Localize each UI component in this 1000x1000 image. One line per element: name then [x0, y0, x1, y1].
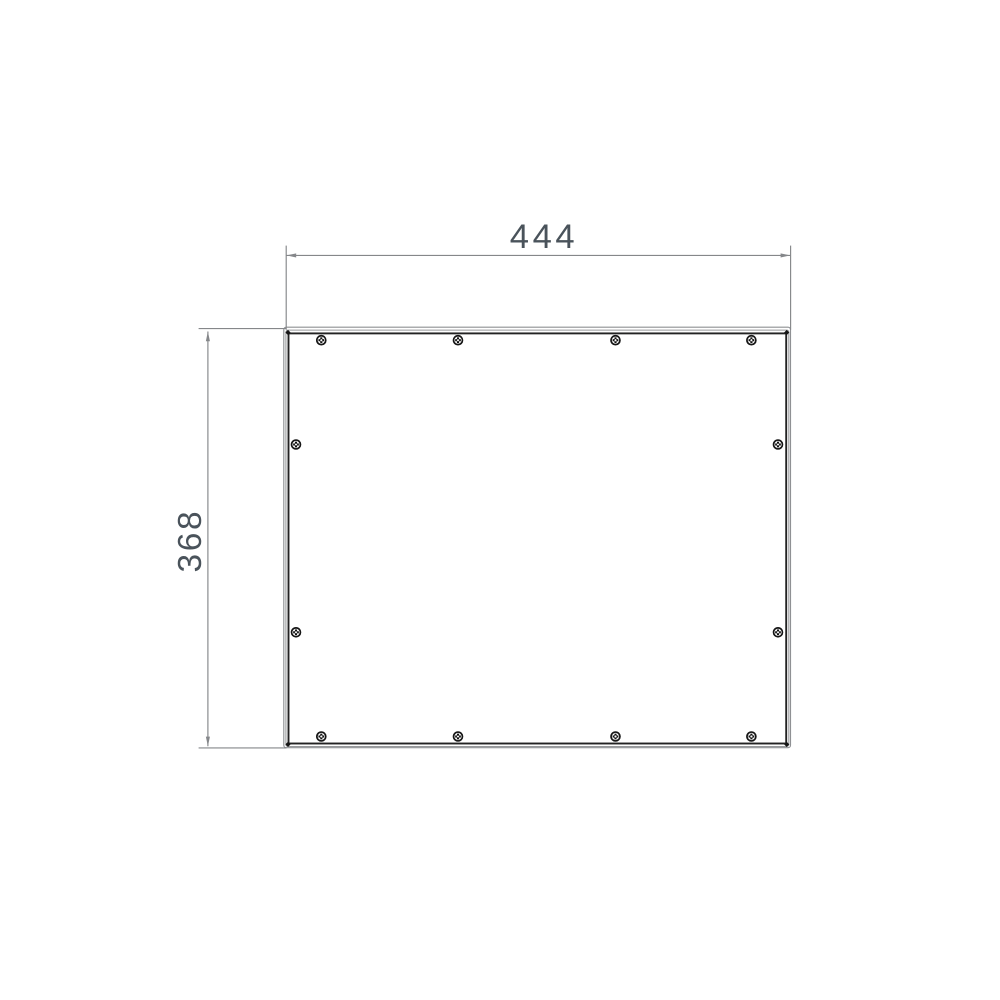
- svg-text:444: 444: [510, 218, 579, 256]
- svg-text:368: 368: [172, 509, 209, 573]
